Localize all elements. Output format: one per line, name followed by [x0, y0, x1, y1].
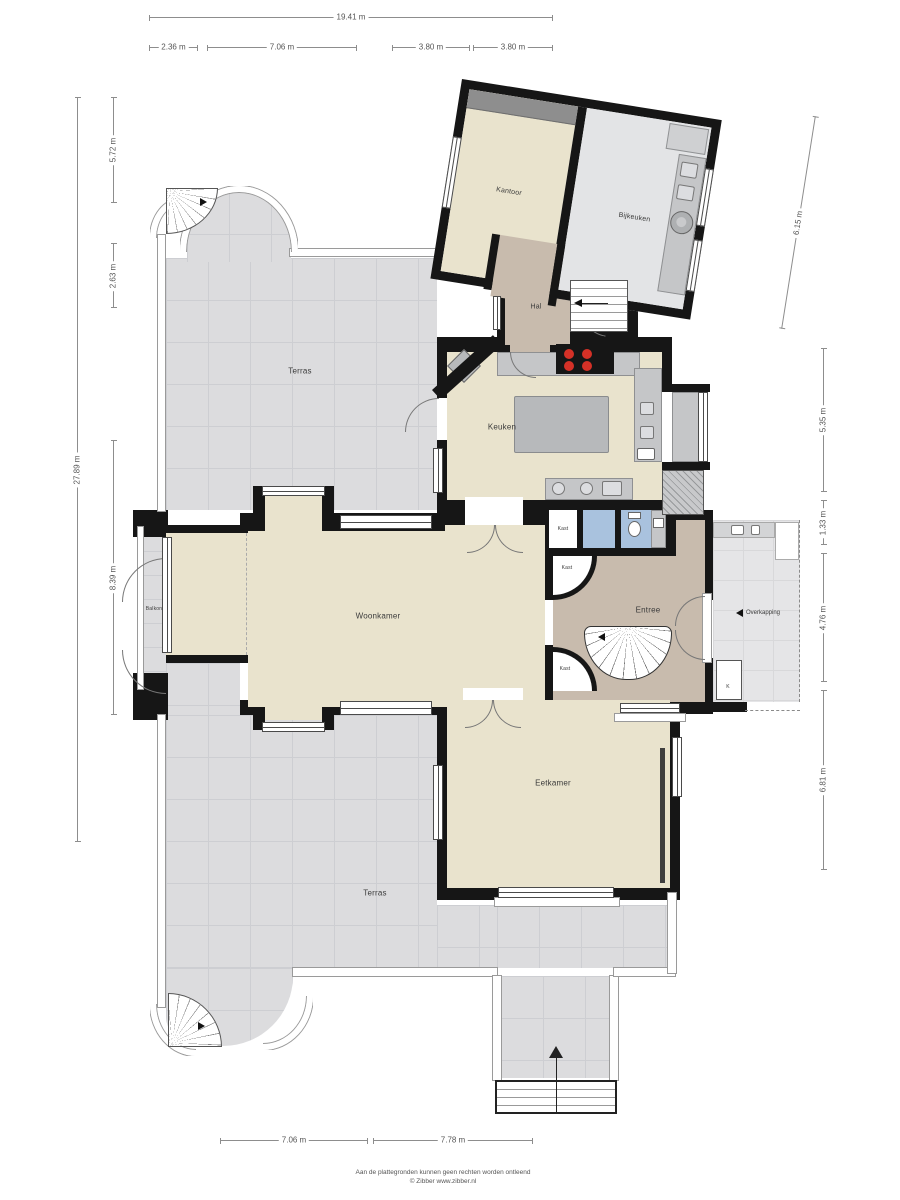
dim-label: 7.78 m: [438, 1136, 468, 1145]
dim-label: 3.80 m: [498, 43, 528, 52]
sink-icon: [653, 518, 664, 528]
dim-label: 5.72 m: [109, 135, 118, 165]
dim-top-4: 3.80 m: [473, 47, 553, 48]
bay-window-north: [265, 494, 322, 531]
window: [498, 887, 614, 898]
dim-top-3: 3.80 m: [392, 47, 470, 48]
copyright-text: © Zibber www.zibber.nl: [0, 1177, 886, 1186]
terrace-wall: [610, 976, 618, 1080]
annex-passage: [490, 235, 557, 305]
entree-vestibule: [676, 520, 705, 556]
disclaimer-text: Aan de plattegronden kunnen geen rechten…: [0, 1168, 886, 1177]
window: [262, 486, 325, 496]
appliance-icon: [676, 184, 695, 201]
wall: [166, 655, 248, 663]
door-swing: [122, 558, 166, 602]
dim-right-4: 4.76 m: [823, 553, 824, 682]
terrace-north: [166, 258, 437, 510]
window: [262, 722, 325, 732]
room-label: Hal: [530, 304, 541, 311]
room-label: Kast: [558, 526, 569, 532]
burner-icon: [582, 361, 592, 371]
garden-stairs: [168, 993, 222, 1047]
wall: [166, 525, 248, 533]
fan-icon: [552, 482, 565, 495]
stairs-direction-arrow-icon: [200, 198, 207, 206]
window: [672, 737, 682, 797]
window: [433, 765, 443, 840]
bay-window-south: [265, 683, 322, 720]
steps-arrow-stem: [556, 1058, 557, 1112]
room-label: Entree: [636, 606, 661, 615]
room-label: Eetkamer: [535, 779, 571, 788]
overkapping-dashed-edge: [745, 710, 800, 711]
k-closet: [716, 660, 742, 700]
entrance-arrow-icon: [736, 609, 743, 617]
dim-right-3: 1.33 m: [823, 500, 824, 545]
window-sill: [615, 714, 685, 721]
burner-icon: [564, 349, 574, 359]
wall: [713, 702, 747, 712]
wall: [705, 512, 713, 558]
terrace-wall: [158, 715, 165, 1007]
dim-label: 1.33 m: [819, 507, 828, 537]
footer-disclaimer: Aan de plattegronden kunnen geen rechten…: [0, 1168, 886, 1186]
room-label: Overkapping: [746, 610, 780, 616]
window: [340, 515, 432, 529]
wall: [662, 384, 710, 392]
stair-treads: [169, 994, 221, 1046]
stair-treads: [167, 189, 217, 233]
door-swing: [122, 650, 166, 694]
room-label: Keuken: [488, 423, 516, 432]
appliance-icon: [679, 161, 698, 178]
dim-left-2: 2.63 m: [113, 243, 114, 308]
terrace-wall: [493, 976, 501, 1080]
appliance-icon: [640, 426, 654, 439]
room-shower: [583, 510, 615, 548]
door-opening: [510, 337, 550, 352]
steps-arrow-icon: [549, 1046, 563, 1058]
dim-label: 6.81 m: [819, 765, 828, 795]
overkapping-label-group: Overkapping: [736, 607, 800, 619]
kitchen-island: [514, 396, 609, 453]
terrace-wall: [293, 968, 497, 976]
microwave-icon: [602, 481, 622, 496]
dim-label: 7.06 m: [279, 1136, 309, 1145]
terrace-wall: [614, 968, 675, 976]
wall: [545, 548, 672, 556]
dim-right-1: 6.15 m: [781, 116, 816, 329]
dim-bottom-2: 7.78 m: [373, 1140, 533, 1141]
dim-label: 8.39 m: [109, 562, 118, 592]
stairs-arrow-stem: [582, 303, 608, 304]
dim-label: 6.15 m: [791, 207, 805, 239]
dim-left-3: 8.39 m: [113, 440, 114, 715]
stairs-direction-arrow-icon: [598, 633, 605, 641]
door-opening: [463, 688, 523, 700]
window: [698, 392, 708, 462]
appliance-icon: [640, 402, 654, 415]
stairs-arrow-icon: [574, 299, 582, 307]
room-woonkamer-serre: [166, 533, 248, 655]
masonry-pier: [662, 470, 704, 515]
burner-icon: [564, 361, 574, 371]
room-label: Kast: [562, 565, 573, 571]
terrace-south: [166, 715, 437, 968]
toilet-counter: [651, 510, 666, 548]
fan-icon: [580, 482, 593, 495]
dim-label: 27.89 m: [73, 452, 82, 487]
terrace-wall: [158, 235, 165, 511]
sink-icon: [637, 448, 655, 460]
dim-label: 19.41 m: [334, 13, 369, 22]
room-label: Kast: [560, 666, 571, 672]
serre-beam: [246, 533, 247, 655]
door-opening: [465, 497, 523, 525]
window: [493, 296, 501, 330]
toilet-icon: [628, 512, 641, 519]
dim-label: 4.76 m: [819, 602, 828, 632]
window: [433, 448, 443, 493]
terrace-south-east-a: [437, 905, 497, 968]
terrace-south-patch: [166, 663, 240, 715]
radiator: [660, 748, 665, 883]
tap-icon: [751, 525, 760, 535]
tap-icon: [731, 525, 744, 535]
toilet-icon: [628, 521, 641, 537]
dim-top-total: 19.41 m: [149, 17, 553, 18]
room-label: Terras: [363, 889, 386, 898]
window: [340, 701, 432, 715]
dim-label: 3.80 m: [416, 43, 446, 52]
dim-label: 2.63 m: [109, 260, 118, 290]
dim-left-total: 27.89 m: [77, 97, 78, 842]
terrace-wall: [668, 893, 676, 973]
dim-label: 5.35 m: [819, 405, 828, 435]
overkapping-counter: [713, 522, 775, 538]
dim-label: 2.36 m: [158, 43, 188, 52]
stairs-direction-arrow-icon: [198, 1022, 205, 1030]
room-label: Terras: [288, 367, 311, 376]
window: [162, 537, 172, 653]
window-sill: [495, 898, 619, 906]
overkapping-cabinet: [775, 522, 799, 560]
window: [620, 703, 680, 713]
dim-left-1: 5.72 m: [113, 97, 114, 203]
room-eetkamer: [447, 700, 670, 888]
dim-top-2: 7.06 m: [207, 47, 357, 48]
wall: [662, 462, 710, 470]
dim-top-1: 2.36 m: [149, 47, 198, 48]
dim-bottom-1: 7.06 m: [220, 1140, 368, 1141]
dim-label: 7.06 m: [267, 43, 297, 52]
garden-stairs: [166, 188, 218, 234]
terrace-south-east-b: [497, 905, 675, 968]
room-label: Balkon: [146, 606, 163, 612]
room-label: K: [726, 684, 730, 690]
dim-right-5: 6.81 m: [823, 690, 824, 870]
floor-plan: 19.41 m 2.36 m 7.06 m 3.80 m 3.80 m 27.8…: [0, 0, 900, 1200]
room-label: Woonkamer: [356, 612, 401, 621]
burner-icon: [582, 349, 592, 359]
dim-right-2: 5.35 m: [823, 348, 824, 492]
